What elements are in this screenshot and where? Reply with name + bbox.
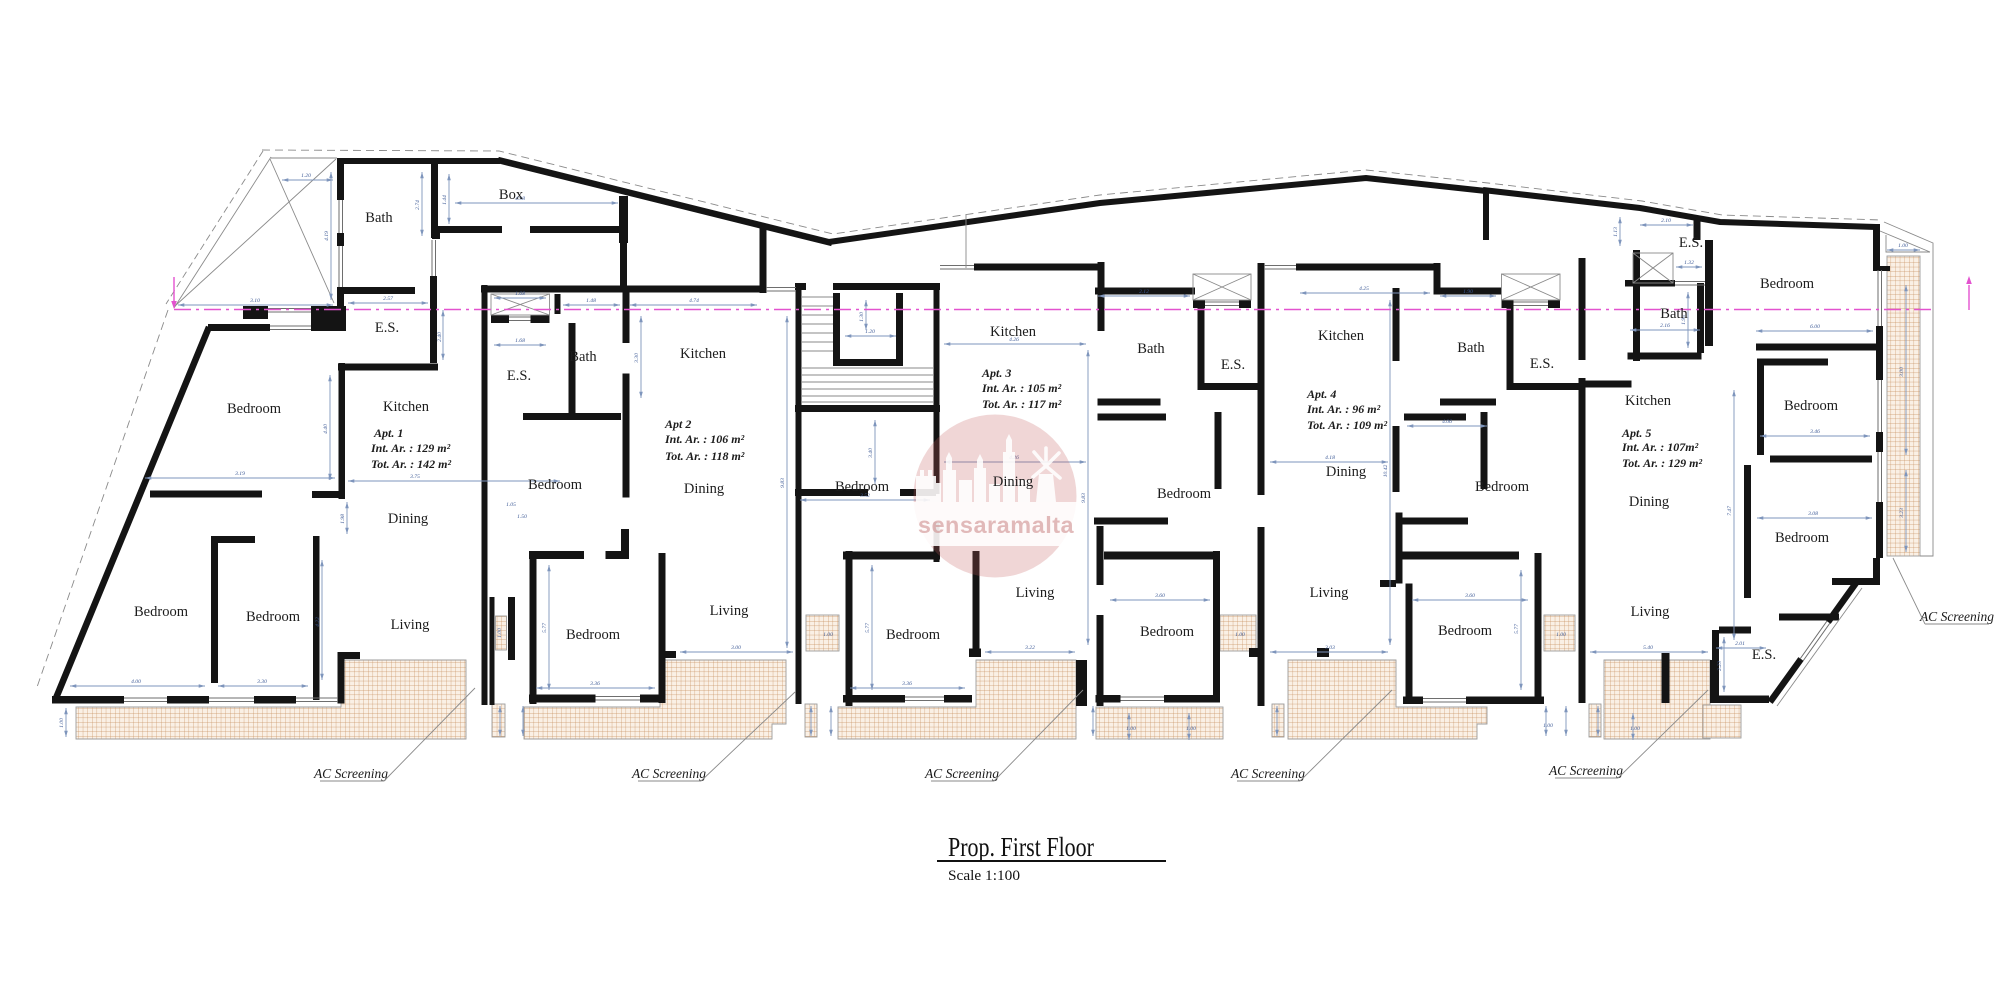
- svg-text:Apt 2: Apt 2: [664, 417, 691, 431]
- svg-text:1.68: 1.68: [515, 291, 525, 297]
- svg-text:Int. Ar. : 107m²: Int. Ar. : 107m²: [1621, 440, 1699, 454]
- svg-text:7.47: 7.47: [1727, 506, 1733, 516]
- svg-text:Dining: Dining: [1326, 464, 1366, 480]
- svg-text:Bedroom: Bedroom: [1784, 398, 1839, 414]
- svg-text:4.06: 4.06: [1442, 419, 1452, 425]
- svg-text:4.22: 4.22: [315, 617, 321, 627]
- svg-text:1.00: 1.00: [1630, 726, 1640, 732]
- svg-text:AC Screening: AC Screening: [1919, 609, 1994, 624]
- svg-text:3.00: 3.00: [730, 645, 741, 651]
- svg-text:Bath: Bath: [1660, 306, 1688, 322]
- svg-text:5.77: 5.77: [865, 623, 871, 633]
- svg-text:E.S.: E.S.: [1221, 357, 1245, 373]
- svg-text:Bedroom: Bedroom: [1775, 530, 1830, 546]
- svg-text:3.60: 3.60: [1154, 593, 1165, 599]
- svg-text:3.19: 3.19: [234, 471, 245, 477]
- svg-text:Bedroom: Bedroom: [246, 609, 301, 625]
- svg-text:Dining: Dining: [1629, 494, 1669, 510]
- svg-text:5.40: 5.40: [1643, 645, 1653, 651]
- svg-text:Kitchen: Kitchen: [990, 324, 1037, 340]
- svg-text:Prop. First Floor: Prop. First Floor: [948, 832, 1094, 862]
- svg-text:Dining: Dining: [388, 511, 428, 527]
- svg-text:Kitchen: Kitchen: [1625, 393, 1672, 409]
- svg-text:1.00: 1.00: [1556, 632, 1566, 638]
- svg-text:3.30: 3.30: [634, 353, 640, 364]
- svg-text:2.01: 2.01: [1735, 641, 1745, 647]
- svg-text:1.20: 1.20: [301, 173, 311, 179]
- svg-text:1.50: 1.50: [517, 514, 527, 520]
- svg-text:Kitchen: Kitchen: [680, 346, 727, 362]
- svg-text:1.68: 1.68: [515, 338, 525, 344]
- svg-text:1.90: 1.90: [1463, 289, 1473, 295]
- svg-text:3.08: 3.08: [1807, 511, 1818, 517]
- svg-text:3.10: 3.10: [249, 298, 260, 304]
- svg-text:Bedroom: Bedroom: [1760, 276, 1815, 292]
- svg-text:Int. Ar. : 106 m²: Int. Ar. : 106 m²: [664, 432, 745, 446]
- svg-text:Bedroom: Bedroom: [566, 627, 621, 643]
- svg-text:Int. Ar. : 96 m²: Int. Ar. : 96 m²: [1306, 402, 1381, 416]
- svg-text:Bath: Bath: [569, 349, 597, 365]
- svg-text:4.18: 4.18: [1325, 455, 1335, 461]
- svg-text:Bedroom: Bedroom: [1438, 623, 1493, 639]
- svg-text:1.00: 1.00: [1126, 726, 1136, 732]
- svg-text:1.13: 1.13: [1613, 227, 1619, 237]
- svg-text:E.S.: E.S.: [375, 320, 399, 336]
- svg-text:Apt. 5: Apt. 5: [1621, 426, 1651, 440]
- svg-text:AC Screening: AC Screening: [313, 766, 388, 781]
- svg-text:Living: Living: [1016, 585, 1055, 601]
- svg-text:3.23: 3.23: [1899, 508, 1905, 519]
- svg-text:Bedroom: Bedroom: [528, 477, 583, 493]
- svg-text:Bath: Bath: [365, 210, 393, 226]
- svg-text:3.60: 3.60: [1464, 593, 1475, 599]
- svg-text:4.00: 4.00: [131, 679, 141, 685]
- svg-text:1.00: 1.00: [1235, 632, 1245, 638]
- svg-text:Kitchen: Kitchen: [383, 399, 430, 415]
- svg-text:Bath: Bath: [1457, 340, 1485, 356]
- svg-text:Bedroom: Bedroom: [134, 604, 189, 620]
- svg-text:Bedroom: Bedroom: [886, 627, 941, 643]
- svg-text:1.05: 1.05: [506, 502, 516, 508]
- svg-text:Living: Living: [391, 617, 430, 633]
- svg-text:AC Screening: AC Screening: [1548, 763, 1623, 778]
- svg-text:4.74: 4.74: [689, 298, 699, 304]
- svg-text:3.46: 3.46: [1809, 429, 1820, 435]
- svg-text:10.42: 10.42: [1383, 465, 1389, 478]
- svg-text:Apt. 1: Apt. 1: [373, 426, 403, 440]
- svg-text:2.40: 2.40: [437, 332, 443, 342]
- svg-text:Tot. Ar. : 117 m²: Tot. Ar. : 117 m²: [982, 397, 1062, 411]
- svg-text:6.00: 6.00: [1810, 324, 1820, 330]
- svg-text:sensaramalta: sensaramalta: [918, 512, 1075, 538]
- svg-text:1.32: 1.32: [1684, 260, 1694, 266]
- svg-text:1.00: 1.00: [59, 718, 65, 728]
- svg-text:Bedroom: Bedroom: [1475, 479, 1530, 495]
- svg-text:Int. Ar. : 105 m²: Int. Ar. : 105 m²: [981, 381, 1062, 395]
- svg-text:AC Screening: AC Screening: [631, 766, 706, 781]
- svg-text:1.98: 1.98: [340, 514, 346, 524]
- svg-text:1.00: 1.00: [823, 632, 833, 638]
- svg-text:Living: Living: [1631, 604, 1670, 620]
- svg-text:Apt. 4: Apt. 4: [1306, 387, 1336, 401]
- svg-text:Box: Box: [499, 187, 524, 203]
- svg-text:2.23: 2.23: [1717, 661, 1723, 671]
- svg-text:3.00: 3.00: [1899, 367, 1905, 378]
- svg-text:9.83: 9.83: [1081, 493, 1087, 503]
- svg-text:Int. Ar. : 129 m²: Int. Ar. : 129 m²: [370, 441, 451, 455]
- svg-text:Bath: Bath: [1137, 341, 1165, 357]
- svg-text:Tot. Ar. : 142 m²: Tot. Ar. : 142 m²: [371, 457, 451, 471]
- svg-text:Tot. Ar. : 129 m²: Tot. Ar. : 129 m²: [1622, 456, 1702, 470]
- svg-text:4.25: 4.25: [1359, 286, 1369, 292]
- svg-text:Bedroom: Bedroom: [1157, 486, 1212, 502]
- svg-text:5.77: 5.77: [1514, 624, 1520, 634]
- svg-text:1.48: 1.48: [586, 298, 596, 304]
- svg-text:5.77: 5.77: [542, 623, 548, 633]
- svg-text:9.83: 9.83: [780, 478, 786, 488]
- svg-text:3.36: 3.36: [589, 681, 600, 687]
- svg-text:1.00: 1.00: [497, 628, 503, 638]
- svg-text:1.30: 1.30: [859, 312, 865, 322]
- svg-text:Apt. 3: Apt. 3: [981, 366, 1011, 380]
- svg-text:Dining: Dining: [684, 481, 724, 497]
- svg-text:2.12: 2.12: [1139, 289, 1149, 295]
- svg-text:3.40: 3.40: [868, 448, 874, 459]
- svg-text:3.03: 3.03: [1324, 645, 1335, 651]
- svg-text:E.S.: E.S.: [1530, 356, 1554, 372]
- svg-text:3.36: 3.36: [901, 681, 912, 687]
- svg-text:3.30: 3.30: [256, 679, 267, 685]
- svg-text:Dining: Dining: [993, 474, 1033, 490]
- svg-text:Tot. Ar. : 118 m²: Tot. Ar. : 118 m²: [665, 449, 745, 463]
- svg-text:1.00: 1.00: [1898, 243, 1908, 249]
- svg-text:Scale 1:100: Scale 1:100: [948, 868, 1020, 884]
- svg-text:E.S.: E.S.: [507, 368, 531, 384]
- svg-text:Tot. Ar. : 109 m²: Tot. Ar. : 109 m²: [1307, 418, 1387, 432]
- svg-text:4.40: 4.40: [323, 424, 329, 434]
- svg-text:2.74: 2.74: [415, 200, 421, 210]
- svg-text:Bedroom: Bedroom: [227, 401, 282, 417]
- svg-text:E.S.: E.S.: [1679, 235, 1703, 251]
- svg-text:1.20: 1.20: [865, 329, 875, 335]
- svg-text:AC Screening: AC Screening: [1230, 766, 1305, 781]
- svg-text:2.57: 2.57: [383, 296, 393, 302]
- svg-text:AC Screening: AC Screening: [924, 766, 999, 781]
- svg-text:E.S.: E.S.: [1752, 647, 1776, 663]
- svg-text:3.75: 3.75: [409, 474, 420, 480]
- svg-text:3.22: 3.22: [1024, 645, 1035, 651]
- svg-text:4.19: 4.19: [324, 231, 330, 241]
- svg-text:1.00: 1.00: [1186, 726, 1196, 732]
- svg-text:2.16: 2.16: [1660, 323, 1670, 329]
- svg-text:1.00: 1.00: [1543, 723, 1553, 729]
- svg-text:1.44: 1.44: [442, 195, 448, 205]
- svg-text:Living: Living: [710, 603, 749, 619]
- svg-text:Living: Living: [1310, 585, 1349, 601]
- svg-text:2.10: 2.10: [1661, 218, 1671, 224]
- svg-text:Kitchen: Kitchen: [1318, 328, 1365, 344]
- svg-text:Bedroom: Bedroom: [835, 479, 890, 495]
- svg-text:Bedroom: Bedroom: [1140, 624, 1195, 640]
